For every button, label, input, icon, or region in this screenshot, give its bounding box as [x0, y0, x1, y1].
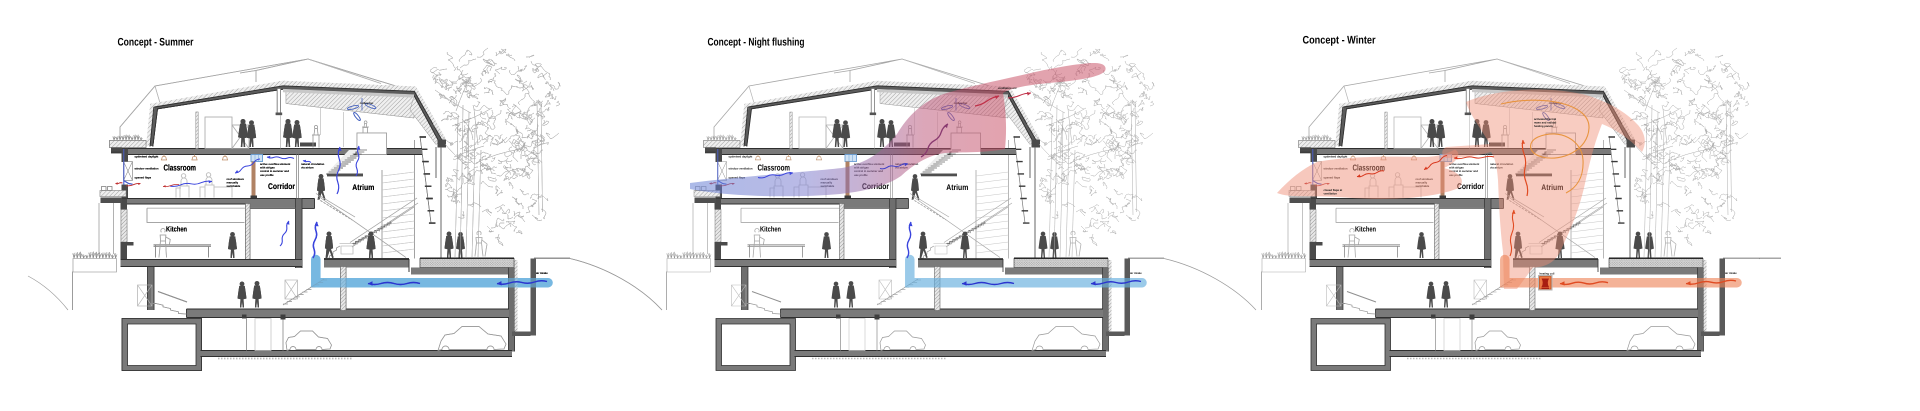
svg-text:heating coil: heating coil	[1540, 273, 1555, 276]
svg-text:activated thermal: activated thermal	[1534, 118, 1556, 121]
svg-text:ventilators on!: ventilators on!	[998, 87, 1017, 90]
svg-text:ventilation: ventilation	[1324, 193, 1338, 196]
svg-text:Concept - Summer: Concept - Summer	[118, 37, 195, 49]
svg-text:Concept - Night flushing: Concept - Night flushing	[708, 37, 805, 49]
svg-text:closed flaps at: closed flaps at	[1324, 189, 1343, 192]
svg-text:Concept - Winter: Concept - Winter	[1303, 35, 1377, 47]
svg-text:heating panels: heating panels	[1534, 125, 1553, 128]
svg-text:mass and radiant: mass and radiant	[1534, 122, 1556, 125]
